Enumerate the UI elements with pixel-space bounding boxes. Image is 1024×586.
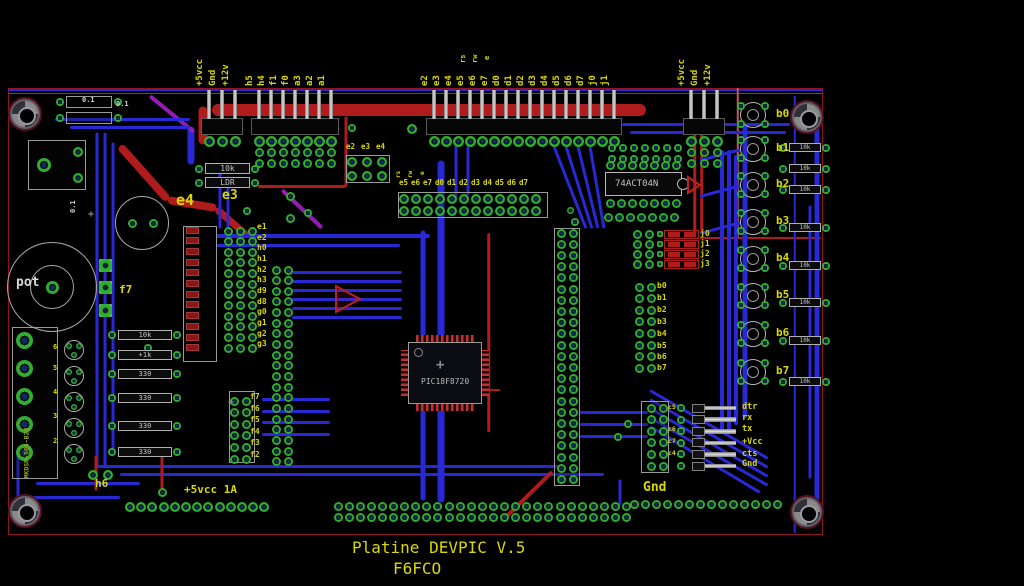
header-pin[interactable] <box>468 90 472 119</box>
solder-pad[interactable] <box>377 171 387 181</box>
solder-pad[interactable] <box>284 287 293 296</box>
copper-trace[interactable] <box>8 89 823 91</box>
solder-pad[interactable] <box>647 427 656 436</box>
solder-pad[interactable] <box>557 408 566 417</box>
solder-pad[interactable] <box>712 136 723 147</box>
solder-pad[interactable] <box>557 419 566 428</box>
solder-pad[interactable] <box>561 136 572 147</box>
solder-pad[interactable] <box>661 199 670 208</box>
solder-pad[interactable] <box>254 136 265 147</box>
solder-pad[interactable] <box>236 301 245 310</box>
solder-pad[interactable] <box>674 155 682 163</box>
solder-pad[interactable] <box>647 352 656 361</box>
solder-pad[interactable] <box>639 199 648 208</box>
solder-pad[interactable] <box>557 441 566 450</box>
solder-pad[interactable] <box>822 144 830 152</box>
solder-pad[interactable] <box>471 206 481 216</box>
solder-pad[interactable] <box>557 363 566 372</box>
solder-pad[interactable] <box>569 352 578 361</box>
solder-pad[interactable] <box>66 343 72 349</box>
solder-pad[interactable] <box>489 502 498 511</box>
solder-pad[interactable] <box>327 159 336 168</box>
solder-pad[interactable] <box>230 408 239 417</box>
solder-pad[interactable] <box>557 430 566 439</box>
solder-pad[interactable] <box>224 258 233 267</box>
solder-pad[interactable] <box>647 341 656 350</box>
solder-pad[interactable] <box>399 206 409 216</box>
solder-pad[interactable] <box>822 224 830 232</box>
header-pin[interactable] <box>689 90 693 119</box>
solder-pad[interactable] <box>483 194 493 204</box>
solder-pad[interactable] <box>611 502 620 511</box>
solder-pad[interactable] <box>700 148 709 157</box>
solder-pad[interactable] <box>356 513 365 522</box>
solder-pad[interactable] <box>108 331 116 339</box>
solder-pad[interactable] <box>46 281 59 294</box>
solder-pad[interactable] <box>272 266 281 275</box>
solder-pad[interactable] <box>606 199 615 208</box>
solder-pad[interactable] <box>423 206 433 216</box>
solder-pad[interactable] <box>362 157 372 167</box>
header-pin[interactable] <box>293 90 297 119</box>
solder-pad[interactable] <box>544 502 553 511</box>
copper-trace[interactable] <box>212 104 646 116</box>
solder-pad[interactable] <box>173 422 181 430</box>
solder-pad[interactable] <box>248 344 257 353</box>
copper-trace[interactable] <box>292 316 402 319</box>
solder-pad[interactable] <box>557 251 566 260</box>
solder-pad[interactable] <box>737 190 745 198</box>
solder-pad[interactable] <box>230 443 239 452</box>
solder-pad[interactable] <box>66 395 72 401</box>
solder-pad[interactable] <box>557 341 566 350</box>
solder-pad[interactable] <box>685 500 694 509</box>
solder-pad[interactable] <box>108 422 116 430</box>
copper-trace[interactable] <box>36 482 140 485</box>
header-pin[interactable] <box>552 90 556 119</box>
solder-pad[interactable] <box>173 448 181 456</box>
solder-pad[interactable] <box>251 179 259 187</box>
solder-pad[interactable] <box>467 513 476 522</box>
solder-pad[interactable] <box>411 206 421 216</box>
solder-pad[interactable] <box>76 447 82 453</box>
solder-pad[interactable] <box>761 209 769 217</box>
solder-pad[interactable] <box>315 148 324 157</box>
copper-trace[interactable] <box>700 237 821 239</box>
solder-pad[interactable] <box>737 120 745 128</box>
solder-pad[interactable] <box>389 502 398 511</box>
header-pin[interactable] <box>715 90 719 119</box>
solder-pad[interactable] <box>677 462 685 470</box>
solder-pad[interactable] <box>272 372 281 381</box>
solder-pad[interactable] <box>659 427 668 436</box>
header-pin[interactable] <box>504 90 508 119</box>
solder-pad[interactable] <box>737 377 745 385</box>
resistor[interactable]: 10k <box>205 163 250 174</box>
solder-pad[interactable] <box>674 144 682 152</box>
solder-pad[interactable] <box>630 155 638 163</box>
solder-pad[interactable] <box>170 502 180 512</box>
solder-pad[interactable] <box>495 206 505 216</box>
solder-pad[interactable] <box>272 457 281 466</box>
solder-pad[interactable] <box>647 415 656 424</box>
solder-pad[interactable] <box>729 500 738 509</box>
solder-pad[interactable] <box>569 251 578 260</box>
copper-trace[interactable] <box>112 142 115 452</box>
solder-pad[interactable] <box>248 290 257 299</box>
solder-pad[interactable] <box>272 415 281 424</box>
solder-pad[interactable] <box>773 500 782 509</box>
solder-pad[interactable] <box>284 425 293 434</box>
solder-pad[interactable] <box>251 165 259 173</box>
solder-pad[interactable] <box>304 209 312 217</box>
solder-pad[interactable] <box>569 229 578 238</box>
solder-pad[interactable] <box>236 344 245 353</box>
solder-pad[interactable] <box>181 502 191 512</box>
header-pin[interactable] <box>516 90 520 119</box>
header-pin[interactable] <box>207 90 211 119</box>
solder-pad[interactable] <box>173 394 181 402</box>
serial-connector-body[interactable] <box>692 450 705 459</box>
solder-pad[interactable] <box>435 206 445 216</box>
solder-pad[interactable] <box>377 157 387 167</box>
solder-pad[interactable] <box>267 159 276 168</box>
solder-pad[interactable] <box>569 374 578 383</box>
solder-pad[interactable] <box>76 369 82 375</box>
solder-pad[interactable] <box>737 339 745 347</box>
solder-pad[interactable] <box>399 194 409 204</box>
solder-pad[interactable] <box>761 102 769 110</box>
solder-pad[interactable] <box>761 172 769 180</box>
serial-connector-body[interactable] <box>692 415 705 424</box>
solder-pad[interactable] <box>422 502 431 511</box>
qfp-pin-row[interactable] <box>481 350 489 396</box>
solder-pad[interactable] <box>608 144 616 152</box>
solder-pad[interactable] <box>56 114 64 122</box>
solder-pad[interactable] <box>411 502 420 511</box>
solder-pad[interactable] <box>687 148 696 157</box>
connector-pin[interactable] <box>705 417 736 422</box>
solder-pad[interactable] <box>224 227 233 236</box>
solder-pad[interactable] <box>302 136 313 147</box>
solder-pad[interactable] <box>557 352 566 361</box>
header-pin[interactable] <box>233 90 237 119</box>
solder-pad[interactable] <box>315 159 324 168</box>
solder-pad[interactable] <box>569 441 578 450</box>
header-pin[interactable] <box>600 90 604 119</box>
copper-trace[interactable] <box>262 433 330 436</box>
solder-pad[interactable] <box>567 513 576 522</box>
push-button-cap[interactable] <box>747 216 759 228</box>
header-pin[interactable] <box>220 90 224 119</box>
solder-pad[interactable] <box>279 148 288 157</box>
solder-pad[interactable] <box>600 502 609 511</box>
solder-pad[interactable] <box>411 194 421 204</box>
resistor[interactable]: 330 <box>118 369 172 379</box>
header-pin[interactable] <box>702 90 706 119</box>
solder-pad[interactable] <box>647 329 656 338</box>
solder-pad[interactable] <box>659 415 668 424</box>
solder-pad[interactable] <box>226 502 236 512</box>
solder-pad[interactable] <box>286 214 295 223</box>
solder-pad[interactable] <box>278 136 289 147</box>
solder-pad[interactable] <box>822 186 830 194</box>
solder-pad[interactable] <box>578 502 587 511</box>
solder-pad[interactable] <box>173 370 181 378</box>
solder-pad[interactable] <box>513 136 524 147</box>
connector-pin[interactable] <box>705 464 736 469</box>
solder-pad[interactable] <box>447 206 457 216</box>
solder-pad[interactable] <box>569 329 578 338</box>
solder-pad[interactable] <box>525 136 536 147</box>
solder-pad[interactable] <box>334 513 343 522</box>
solder-pad[interactable] <box>624 420 632 428</box>
pin-header-body[interactable] <box>683 118 725 135</box>
solder-pad[interactable] <box>465 136 476 147</box>
solder-pad[interactable] <box>737 102 745 110</box>
header-pin[interactable] <box>432 90 436 119</box>
solder-pad[interactable] <box>557 285 566 294</box>
solder-pad[interactable] <box>557 240 566 249</box>
pcb-canvas[interactable]: 10k+1k33033033033010k10k10k10k10k10k10k1… <box>0 0 1024 586</box>
solder-pad[interactable] <box>236 333 245 342</box>
solder-pad[interactable] <box>635 306 644 315</box>
solder-pad[interactable] <box>585 136 596 147</box>
solder-pad[interactable] <box>571 218 579 226</box>
solder-pad[interactable] <box>456 502 465 511</box>
solder-pad[interactable] <box>569 307 578 316</box>
solder-pad[interactable] <box>635 329 644 338</box>
solder-pad[interactable] <box>645 240 654 249</box>
solder-pad[interactable] <box>284 447 293 456</box>
solder-pad[interactable] <box>76 421 82 427</box>
solder-pad[interactable] <box>108 394 116 402</box>
header-pin[interactable] <box>456 90 460 119</box>
solder-pad[interactable] <box>66 421 72 427</box>
solder-pad[interactable] <box>272 436 281 445</box>
solder-pad[interactable] <box>284 361 293 370</box>
solder-pad[interactable] <box>569 397 578 406</box>
solder-pad[interactable] <box>224 280 233 289</box>
solder-pad[interactable] <box>633 260 642 269</box>
solder-pad[interactable] <box>471 194 481 204</box>
solder-pad[interactable] <box>236 269 245 278</box>
qfp-pin-row[interactable] <box>416 403 474 411</box>
solder-pad[interactable] <box>737 264 745 272</box>
solder-pad[interactable] <box>737 136 745 144</box>
solder-pad[interactable] <box>557 307 566 316</box>
serial-connector-body[interactable] <box>692 438 705 447</box>
solder-pad[interactable] <box>737 227 745 235</box>
solder-pad[interactable] <box>71 352 77 358</box>
solder-pad[interactable] <box>647 438 656 447</box>
solder-pad[interactable] <box>628 199 637 208</box>
solder-pad[interactable] <box>272 329 281 338</box>
solder-pad[interactable] <box>740 500 749 509</box>
copper-trace[interactable] <box>580 423 648 426</box>
resistor[interactable]: 330 <box>118 421 172 431</box>
push-button-cap[interactable] <box>747 109 759 121</box>
solder-pad[interactable] <box>66 369 72 375</box>
solder-pad[interactable] <box>478 513 487 522</box>
smd-pad[interactable] <box>99 304 112 317</box>
solder-pad[interactable] <box>608 155 616 163</box>
solder-pad[interactable] <box>284 319 293 328</box>
solder-pad[interactable] <box>630 144 638 152</box>
solder-pad[interactable] <box>467 502 476 511</box>
solder-pad[interactable] <box>272 276 281 285</box>
pin-header-body[interactable] <box>251 118 339 135</box>
solder-pad[interactable] <box>761 321 769 329</box>
solder-pad[interactable] <box>569 408 578 417</box>
solder-pad[interactable] <box>569 262 578 271</box>
copper-trace[interactable] <box>161 452 164 490</box>
resistor[interactable]: 10k <box>789 223 821 232</box>
copper-trace[interactable] <box>97 465 560 468</box>
resistor[interactable]: 10k <box>789 164 821 173</box>
solder-pad[interactable] <box>159 502 169 512</box>
solder-pad[interactable] <box>149 219 158 228</box>
resistor[interactable]: 10k <box>789 377 821 386</box>
solder-pad[interactable] <box>822 378 830 386</box>
solder-pad[interactable] <box>569 430 578 439</box>
solder-pad[interactable] <box>456 513 465 522</box>
resistor[interactable]: 10k <box>789 298 821 307</box>
solder-pad[interactable] <box>272 393 281 402</box>
copper-trace[interactable] <box>815 120 820 500</box>
solder-pad[interactable] <box>272 383 281 392</box>
solder-pad[interactable] <box>334 502 343 511</box>
solder-pad[interactable] <box>230 420 239 429</box>
solder-pad[interactable] <box>557 374 566 383</box>
solder-pad[interactable] <box>367 513 376 522</box>
resistor[interactable]: +1k <box>118 350 172 360</box>
connector-pin[interactable] <box>705 406 736 411</box>
solder-pad[interactable] <box>272 287 281 296</box>
solder-pad[interactable] <box>663 500 672 509</box>
resistor[interactable]: 330 <box>118 447 172 457</box>
solder-pad[interactable] <box>751 500 760 509</box>
copper-trace[interactable] <box>794 96 796 533</box>
smd-pad[interactable] <box>657 241 663 247</box>
solder-pad[interactable] <box>569 475 578 484</box>
copper-trace[interactable] <box>488 233 491 432</box>
solder-pad[interactable] <box>16 388 33 405</box>
solder-pad[interactable] <box>284 404 293 413</box>
solder-pad[interactable] <box>556 513 565 522</box>
solder-pad[interactable] <box>230 455 239 464</box>
solder-pad[interactable] <box>663 155 671 163</box>
resistor[interactable]: 10k <box>789 143 821 152</box>
solder-pad[interactable] <box>556 502 565 511</box>
solder-pad[interactable] <box>284 276 293 285</box>
solder-pad[interactable] <box>248 322 257 331</box>
copper-trace[interactable] <box>8 93 823 95</box>
solder-pad[interactable] <box>573 136 584 147</box>
solder-pad[interactable] <box>56 98 64 106</box>
solder-pad[interactable] <box>700 159 709 168</box>
solder-pad[interactable] <box>531 206 541 216</box>
copper-trace[interactable] <box>467 145 470 195</box>
solder-pad[interactable] <box>537 136 548 147</box>
copper-trace[interactable] <box>438 408 445 502</box>
solder-pad[interactable] <box>272 425 281 434</box>
solder-pad[interactable] <box>507 194 517 204</box>
mounting-hole[interactable] <box>792 102 822 132</box>
header-pin[interactable] <box>528 90 532 119</box>
solder-pad[interactable] <box>284 351 293 360</box>
solder-pad[interactable] <box>557 229 566 238</box>
resistor[interactable]: 10k <box>789 261 821 270</box>
solder-pad[interactable] <box>195 179 203 187</box>
solder-pad[interactable] <box>718 500 727 509</box>
solder-pad[interactable] <box>447 194 457 204</box>
solder-pad[interactable] <box>531 194 541 204</box>
solder-pad[interactable] <box>433 502 442 511</box>
solder-pad[interactable] <box>557 262 566 271</box>
solder-pad[interactable] <box>761 377 769 385</box>
connector-pin[interactable] <box>705 441 736 446</box>
header-pin[interactable] <box>269 90 273 119</box>
solder-pad[interactable] <box>423 194 433 204</box>
solder-pad[interactable] <box>647 306 656 315</box>
solder-pad[interactable] <box>195 165 203 173</box>
solder-pad[interactable] <box>378 513 387 522</box>
solder-pad[interactable] <box>71 430 77 436</box>
solder-pad[interactable] <box>663 144 671 152</box>
solder-pad[interactable] <box>272 297 281 306</box>
solder-pad[interactable] <box>230 136 241 147</box>
solder-pad[interactable] <box>224 269 233 278</box>
solder-pad[interactable] <box>600 513 609 522</box>
solder-pad[interactable] <box>659 462 668 471</box>
serial-connector-body[interactable] <box>692 404 705 413</box>
solder-pad[interactable] <box>483 206 493 216</box>
solder-pad[interactable] <box>672 199 681 208</box>
solder-pad[interactable] <box>647 404 656 413</box>
solder-pad[interactable] <box>291 159 300 168</box>
solder-pad[interactable] <box>236 227 245 236</box>
solder-pad[interactable] <box>286 192 295 201</box>
smd-pad[interactable] <box>99 281 112 294</box>
solder-pad[interactable] <box>284 383 293 392</box>
smd-pad[interactable] <box>657 231 663 237</box>
solder-pad[interactable] <box>71 404 77 410</box>
solder-pad[interactable] <box>641 155 649 163</box>
solder-pad[interactable] <box>647 364 656 373</box>
solder-pad[interactable] <box>569 453 578 462</box>
solder-pad[interactable] <box>326 136 337 147</box>
pin-header-body[interactable] <box>201 118 243 135</box>
solder-pad[interactable] <box>737 283 745 291</box>
solder-pad[interactable] <box>272 447 281 456</box>
solder-pad[interactable] <box>822 337 830 345</box>
header-pin[interactable] <box>257 90 261 119</box>
solder-pad[interactable] <box>557 318 566 327</box>
solder-pad[interactable] <box>348 124 356 132</box>
solder-pad[interactable] <box>272 319 281 328</box>
push-button-cap[interactable] <box>747 290 759 302</box>
solder-pad[interactable] <box>16 360 33 377</box>
solder-pad[interactable] <box>652 144 660 152</box>
solder-pad[interactable] <box>303 159 312 168</box>
copper-trace[interactable] <box>258 185 346 188</box>
solder-pad[interactable] <box>272 404 281 413</box>
solder-pad[interactable] <box>569 240 578 249</box>
solder-pad[interactable] <box>670 213 679 222</box>
solder-pad[interactable] <box>435 194 445 204</box>
solder-pad[interactable] <box>645 260 654 269</box>
